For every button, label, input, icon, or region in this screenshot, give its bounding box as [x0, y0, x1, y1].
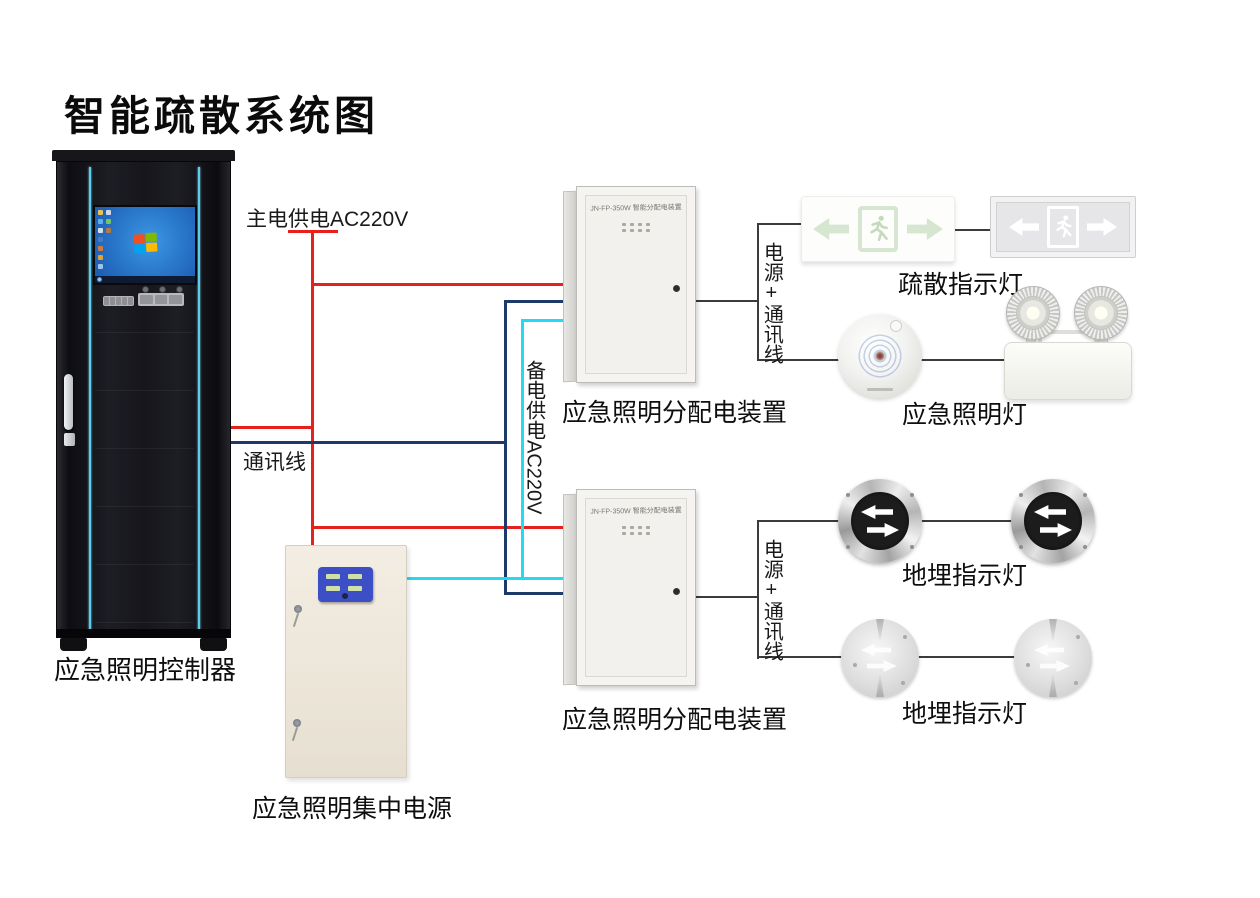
exit-sign-white: [801, 196, 955, 262]
ground-light-group1-label: 地埋指示灯: [902, 556, 1027, 592]
arrow-right-icon: [1087, 218, 1117, 236]
distribution-box-1-label: 应急照明分配电装置: [562, 393, 787, 429]
cabinet-base: [57, 629, 230, 637]
desktop-icon: [98, 246, 103, 251]
psu-lock-bottom: [293, 719, 301, 727]
cabinet-screen: [93, 205, 197, 285]
ground-light-face: [851, 492, 909, 550]
box-front-door: JN-FP-350W 智能分配电装置: [576, 186, 696, 383]
wire-branch1-from-box1: [694, 300, 759, 302]
arrow-left-icon: [813, 218, 849, 240]
psu-panel-button: [342, 593, 348, 599]
cabinet-door-panels: [95, 332, 194, 623]
psu-control-panel: [318, 567, 373, 602]
box-door-frame: [585, 195, 687, 374]
ground-light-group2-label: 地埋指示灯: [902, 694, 1027, 730]
ground-light-silver-1: [841, 619, 919, 697]
central-power-label: 应急照明集中电源: [252, 789, 448, 825]
box-indicator-leds: [577, 223, 695, 232]
exit-sign-gray-panel: [996, 202, 1130, 252]
arrow-left-icon: [861, 505, 893, 519]
ground-light-face: [1024, 492, 1082, 550]
wire-between-exit-signs: [953, 229, 991, 231]
desktop-icon: [98, 255, 103, 260]
central-power-supply: [285, 545, 407, 778]
psu-lock-top: [294, 605, 302, 613]
cabinet-accent-right: [198, 167, 200, 631]
arrow-right-embossed-icon: [1040, 660, 1070, 672]
ground-light-black-2: [1011, 479, 1095, 563]
main-power-label: 主电供电AC220V: [246, 203, 408, 233]
wire-branch2-vertical: [757, 520, 759, 659]
wire-comm-vertical: [504, 300, 507, 595]
wire-between-ground-lights-row2: [916, 656, 1016, 658]
wire-comm-to-box1: [504, 300, 566, 303]
box-model-text: JN-FP-350W 智能分配电装置: [577, 505, 695, 517]
branch2-label: 电源+通讯线: [761, 539, 781, 659]
arrow-right-icon: [907, 218, 943, 240]
cabinet-door-latch: [64, 433, 75, 446]
page-title: 智能疏散系统图: [64, 82, 379, 142]
desktop-icon: [98, 219, 103, 224]
light-wedge-top: [1040, 619, 1066, 641]
cabinet-indicator-dot: [176, 286, 183, 293]
cabinet-door-handle: [64, 374, 73, 430]
taskbar: [95, 276, 195, 283]
psu-lock-top-key: [293, 613, 299, 627]
cabinet-accent-left: [89, 167, 91, 631]
arrow-left-embossed-icon: [1034, 644, 1064, 656]
box-lock-icon: [673, 285, 680, 292]
branch1-label: 电源+通讯线: [761, 242, 781, 362]
ground-light-silver-2: [1014, 619, 1092, 697]
ground-light-black-1: [838, 479, 922, 563]
lamp-head-left: [1006, 286, 1060, 340]
box-model-text: JN-FP-350W 智能分配电装置: [577, 202, 695, 214]
distribution-box-1: JN-FP-350W 智能分配电装置: [563, 186, 696, 388]
arrow-left-embossed-icon: [861, 644, 891, 656]
arrow-right-icon: [1040, 523, 1072, 537]
emergency-light-label: 应急照明灯: [902, 395, 1027, 431]
desktop-icon: [98, 210, 103, 215]
box-door-frame: [585, 498, 687, 677]
desktop-icon: [106, 210, 111, 215]
desktop-icon: [98, 228, 103, 233]
wire-branch2-from-box2: [694, 596, 759, 598]
box-side-panel: [563, 191, 577, 382]
box-indicator-leds: [577, 526, 695, 535]
controller-cabinet-top: [52, 150, 235, 161]
twin-head-emergency-light: [1004, 284, 1132, 400]
controller-cabinet: [56, 161, 231, 638]
light-wedge-bottom: [867, 675, 893, 697]
desktop-icon: [106, 219, 111, 224]
wire-branch1-vertical: [757, 223, 759, 361]
wire-branch2-to-ground-light1: [757, 520, 841, 522]
desktop-icon: [98, 237, 103, 242]
light-test-button: [890, 320, 902, 332]
windows-logo-icon: [133, 232, 158, 254]
arrow-left-icon: [1009, 218, 1039, 236]
cabinet-button-strip-left: [103, 296, 134, 306]
running-man-door-icon: [1047, 206, 1079, 248]
lamp-head-right: [1074, 286, 1128, 340]
arrow-right-icon: [867, 523, 899, 537]
cabinet-button-strip-right: [138, 293, 184, 306]
running-man-icon: [865, 214, 891, 244]
wire-between-ground-lights-row1: [920, 520, 1014, 522]
controller-label: 应急照明控制器: [46, 650, 244, 687]
wire-branch1-to-exit-sign: [757, 223, 803, 225]
wire-main-power-vertical: [311, 230, 314, 545]
comm-line-label: 通讯线: [243, 446, 306, 476]
running-man-door-icon: [858, 206, 898, 252]
twin-light-body: [1004, 342, 1132, 400]
box-side-panel: [563, 494, 577, 685]
psu-lock-bottom-key: [292, 727, 298, 741]
light-wedge-bottom: [1040, 675, 1066, 697]
start-orb-icon: [97, 277, 102, 282]
desktop-icon: [98, 264, 103, 269]
running-man-icon: [1052, 214, 1074, 240]
wire-comm-to-box2: [504, 592, 566, 595]
wire-backup-to-box1: [521, 319, 566, 322]
light-center-led: [875, 351, 885, 361]
wire-main-power-to-box1: [311, 283, 566, 286]
light-brand-text: [867, 388, 893, 391]
arrow-left-icon: [1034, 505, 1066, 519]
box-front-door: JN-FP-350W 智能分配电装置: [576, 489, 696, 686]
distribution-box-2: JN-FP-350W 智能分配电装置: [563, 489, 696, 691]
arrow-right-embossed-icon: [867, 660, 897, 672]
backup-power-label: 备电供电AC220V: [522, 360, 544, 535]
wire-between-emergency-lights: [919, 359, 1007, 361]
light-wedge-top: [867, 619, 893, 641]
box-lock-icon: [673, 588, 680, 595]
distribution-box-2-label: 应急照明分配电装置: [562, 700, 787, 736]
exit-sign-gray: [990, 196, 1136, 258]
cabinet-indicator-dot: [159, 286, 166, 293]
wire-backup-to-box2: [407, 577, 566, 580]
round-emergency-light: [838, 314, 922, 398]
desktop-icon: [106, 228, 111, 233]
wire-comm-from-controller: [231, 441, 507, 444]
cabinet-indicator-dot: [142, 286, 149, 293]
wire-main-power-to-controller: [231, 426, 314, 429]
